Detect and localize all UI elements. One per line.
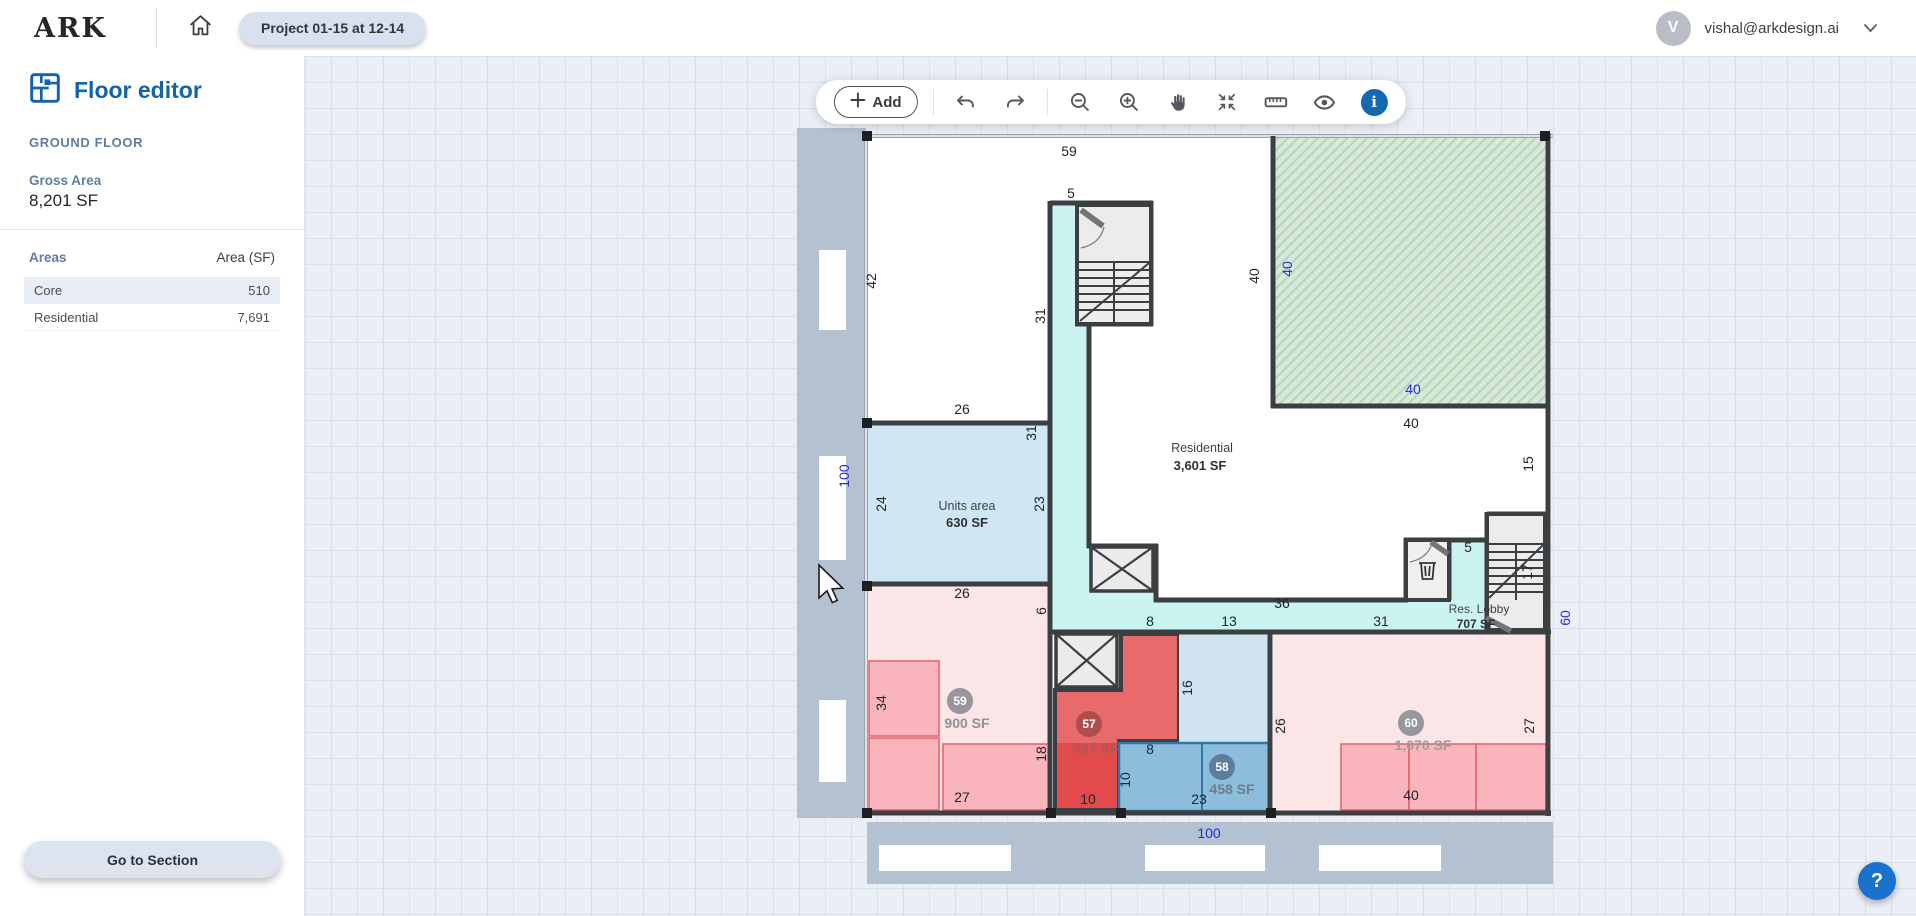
dim-label: 40 — [1403, 787, 1419, 803]
areas-title: Areas — [29, 250, 67, 265]
ark-logo: ARK — [34, 13, 130, 44]
floor-editor-icon — [29, 72, 61, 109]
room-label: Units area — [939, 499, 996, 513]
dim-label-blue: 40 — [1405, 381, 1421, 397]
dim-label: 5 — [1464, 539, 1472, 555]
dim-label: 10 — [1080, 791, 1096, 807]
home-button[interactable] — [183, 11, 217, 45]
avatar[interactable]: V — [1656, 11, 1691, 46]
dim-label: 26 — [954, 585, 970, 601]
dim-label: 31 — [1023, 425, 1039, 441]
page-title: Floor editor — [74, 77, 202, 104]
top-bar: ARK Project 01-15 at 12-14 V vishal@arkd… — [0, 0, 1916, 56]
dim-label: 31 — [1373, 613, 1389, 629]
add-button[interactable]: Add — [833, 86, 917, 118]
redo-icon — [1003, 90, 1027, 114]
sidebar: Floor editor GROUND FLOOR Gross Area 8,2… — [0, 56, 305, 916]
dim-label: 40 — [1246, 268, 1262, 284]
table-row-residential[interactable]: Residential 7,691 — [24, 304, 280, 331]
dim-label: 5 — [1067, 185, 1075, 201]
unit-area-label: 327 SF — [1073, 740, 1119, 756]
gross-area-value: 8,201 SF — [29, 191, 304, 211]
chevron-down-icon[interactable] — [1863, 23, 1878, 33]
table-row-core[interactable]: Core 510 — [24, 277, 280, 304]
dim-label: 27 — [1521, 718, 1537, 734]
dim-label: 23 — [1191, 791, 1207, 807]
room-label: Res. Lobby — [1449, 602, 1510, 616]
go-to-section-button[interactable]: Go to Section — [24, 841, 281, 878]
unit-area-label: 458 SF — [1209, 781, 1255, 797]
stair-top — [1077, 205, 1151, 324]
areas-table: Core 510 Residential 7,691 — [24, 277, 280, 331]
fit-view-icon — [1216, 91, 1238, 113]
row-value: 7,691 — [237, 310, 270, 325]
elevator-shaft-2 — [1056, 634, 1117, 687]
account-area: V vishal@arkdesign.ai — [1656, 11, 1878, 46]
unit-60-subrooms — [1341, 744, 1546, 810]
dim-label: 10 — [1117, 772, 1133, 788]
zoom-out-button[interactable] — [1063, 85, 1097, 119]
dim-label: 59 — [1061, 143, 1077, 159]
dim-label: 18 — [1033, 746, 1049, 762]
unit-area-label: 900 SF — [944, 715, 990, 731]
dim-label: 27 — [954, 789, 970, 805]
elevator-shaft-1 — [1091, 547, 1153, 591]
dim-label: 15 — [1520, 456, 1536, 472]
dim-label: 31 — [1032, 308, 1048, 324]
pan-hand-button[interactable] — [1161, 85, 1195, 119]
dim-label: 13 — [1221, 613, 1237, 629]
floor-plan-canvas[interactable]: 59 5 42 31 40 26 40 15 31 24 23 5 17 26 … — [305, 56, 1916, 916]
row-name: Core — [34, 283, 62, 298]
ruler-button[interactable] — [1259, 85, 1293, 119]
dim-label: 34 — [873, 695, 889, 711]
dim-label-blue: 60 — [1557, 610, 1573, 626]
dim-label: 8 — [1146, 613, 1154, 629]
home-icon — [187, 12, 214, 44]
project-tab[interactable]: Project 01-15 at 12-14 — [239, 12, 426, 45]
dim-label: 26 — [1272, 718, 1288, 734]
floor-name: GROUND FLOOR — [29, 135, 304, 150]
dim-label: 6 — [1033, 607, 1049, 615]
unit-badge-number: 58 — [1215, 760, 1229, 774]
zoom-in-button[interactable] — [1112, 85, 1146, 119]
undo-button[interactable] — [949, 85, 983, 119]
areas-column-header: Area (SF) — [216, 250, 275, 265]
pan-hand-icon — [1166, 91, 1189, 114]
unit-badge-number: 59 — [953, 694, 967, 708]
toolbar-separator — [1047, 89, 1048, 115]
dim-label: 16 — [1179, 680, 1195, 696]
dim-label: 40 — [1403, 415, 1419, 431]
dim-label: 26 — [954, 401, 970, 417]
room-area-label: 630 SF — [946, 515, 988, 530]
user-email: vishal@arkdesign.ai — [1705, 20, 1839, 37]
dim-label: 17 — [1519, 564, 1535, 580]
green-open-area[interactable] — [1275, 138, 1549, 404]
dim-label-blue: 40 — [1279, 261, 1295, 277]
plus-icon — [849, 92, 865, 112]
unit-area-label: 1,070 SF — [1395, 737, 1452, 753]
room-area-label: 707 SF — [1457, 617, 1496, 631]
floor-plan-svg: 59 5 42 31 40 26 40 15 31 24 23 5 17 26 … — [305, 56, 1916, 916]
canvas-toolbar: Add — [815, 80, 1405, 124]
trash-room — [1406, 540, 1449, 600]
dim-label: 36 — [1274, 595, 1290, 611]
zoom-out-icon — [1068, 90, 1092, 114]
dim-label: 42 — [863, 273, 879, 289]
dim-label-blue: 100 — [836, 464, 852, 488]
zoom-in-icon — [1117, 90, 1141, 114]
dim-label-blue: 100 — [1197, 825, 1221, 841]
help-button[interactable]: ? — [1858, 862, 1896, 900]
unit-badge-number: 57 — [1082, 717, 1096, 731]
dim-label: 24 — [873, 496, 889, 512]
room-area-label: 3,601 SF — [1174, 458, 1227, 473]
redo-button[interactable] — [998, 85, 1032, 119]
row-name: Residential — [34, 310, 98, 325]
add-button-label: Add — [872, 94, 901, 111]
dim-label: 8 — [1146, 741, 1154, 757]
row-value: 510 — [248, 283, 270, 298]
dim-label: 23 — [1031, 496, 1047, 512]
gross-area-label: Gross Area — [29, 173, 304, 188]
sidewalk-left — [797, 128, 866, 818]
eye-icon — [1312, 90, 1337, 115]
room-label: Residential — [1171, 441, 1233, 455]
fit-view-button[interactable] — [1210, 85, 1244, 119]
ruler-icon — [1263, 89, 1289, 115]
topbar-divider — [156, 8, 157, 48]
undo-icon — [954, 90, 978, 114]
info-button[interactable]: i — [1361, 89, 1388, 116]
sidebar-divider — [0, 229, 304, 230]
unit-badge-number: 60 — [1404, 716, 1418, 730]
toolbar-separator — [933, 89, 934, 115]
visibility-button[interactable] — [1308, 85, 1342, 119]
